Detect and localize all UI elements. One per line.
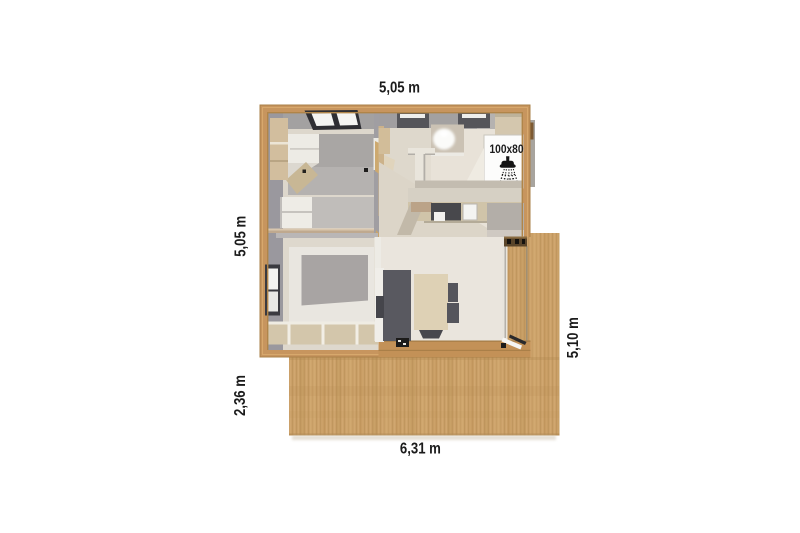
svg-text:100x80: 100x80 (490, 142, 524, 156)
svg-text:5,05 m: 5,05 m (379, 79, 420, 96)
svg-text:6,31 m: 6,31 m (400, 441, 441, 458)
svg-text:5,10 m: 5,10 m (565, 317, 582, 358)
svg-text:2,36 m: 2,36 m (232, 375, 249, 416)
svg-text:5,05 m: 5,05 m (233, 216, 250, 257)
